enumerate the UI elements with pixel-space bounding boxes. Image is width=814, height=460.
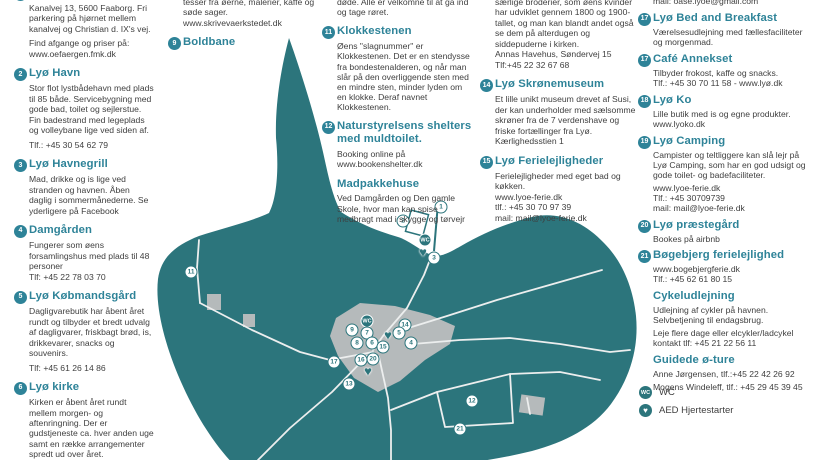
poi-item: 11KlokkestenenØens "slagnummer" er Klokk… [322, 25, 474, 112]
poi-number-badge: 20 [638, 220, 651, 233]
poi-title: Bøgebjerg ferielejlighed [653, 249, 812, 262]
poi-text: www.bogebjergferie.dk Tlf.: +45 62 61 80… [653, 265, 812, 285]
poi-text: Bookes på airbnb [653, 235, 812, 245]
poi-title: Lyø Camping [653, 135, 812, 148]
poi-item: 9Boldbane [168, 36, 320, 49]
column-four: særlige broderier, som øens kvinder har … [480, 0, 638, 231]
poi-number-badge: 14 [480, 79, 493, 92]
poi-title: Naturstyrelsens shelters med muldtoilet. [337, 120, 474, 146]
poi-item: 12Naturstyrelsens shelters med muldtoile… [322, 120, 474, 169]
poi-text: mail: oase.lyoe@gmail.com [653, 0, 812, 7]
poi-text: Udlejning af cykler på havnen. Selvbetje… [653, 306, 812, 326]
poi-number-badge: 17 [638, 54, 651, 67]
poi-text: Ved Damgården og Den gamle Skole, hvor m… [337, 193, 474, 223]
poi-title: Cykeludlejning [653, 290, 812, 303]
poi-text: www.lyoe-ferie.dk Tlf.: +45 30709739 mai… [653, 184, 812, 214]
poi-number-badge: 17 [638, 13, 651, 26]
poi-item: 4DamgårdenFungerer som øens forsamlingsh… [14, 224, 154, 282]
poi-number-badge: 4 [14, 225, 27, 238]
poi-title: Boldbane [183, 36, 320, 49]
poi-item: 6Lyø kirkeKirken er åbent året rundt mel… [14, 381, 154, 460]
poi-item: mail: oase.lyoe@gmail.com [638, 0, 812, 7]
poi-item: 1Ø-FærgenKanalvej 13, 5600 Faaborg. Fri … [14, 0, 154, 59]
island-guide-poster: 12WC♥311WC14975♥86154162017♥131221 1Ø-Fæ… [0, 0, 814, 460]
poi-item: døde. Alle er velkomne til at gå ind og … [322, 0, 474, 17]
poi-number-badge: 5 [14, 291, 27, 304]
poi-text: Mad, drikke og is lige ved stranden og h… [29, 174, 154, 216]
poi-title: Lyø Ferielejligheder [495, 155, 638, 168]
poi-number-badge: 19 [638, 136, 651, 149]
poi-title: Guidede ø-ture [653, 354, 812, 367]
poi-item: 17Lyø Bed and BreakfastVærelsesudlejning… [638, 12, 812, 48]
legend-wc-label: WC [659, 387, 675, 398]
poi-title: Damgården [29, 224, 154, 237]
poi-text: Anne Jørgensen, tlf.:+45 22 42 26 92 [653, 370, 812, 380]
poi-text: Et lille unikt museum drevet af Susi, de… [495, 94, 638, 146]
poi-item: 2Lyø HavnStor flot lystbådehavn med plad… [14, 67, 154, 150]
legend-wc-row: WC WC [639, 386, 733, 399]
poi-number-badge: 2 [14, 68, 27, 81]
poi-title: Lyø Ko [653, 94, 812, 107]
poi-text: Stor flot lystbådehavn med plads til 85 … [29, 83, 154, 135]
poi-number-badge: 3 [14, 159, 27, 172]
poi-title: Café Annekset [653, 53, 812, 66]
poi-text: døde. Alle er velkomne til at gå ind og … [337, 0, 474, 17]
poi-number-badge: 15 [480, 156, 493, 169]
poi-item: 20Lyø præstegårdBookes på airbnb [638, 219, 812, 245]
poi-text: tesser fra øerne, malerier, kaffe og sød… [183, 0, 320, 28]
map-legend: WC WC ♥ AED Hjertestarter [639, 386, 733, 422]
poi-title: Lyø Havnegrill [29, 158, 154, 171]
aed-heart-icon: ♥ [639, 404, 652, 417]
poi-title: Klokkestenen [337, 25, 474, 38]
poi-item: 21Bøgebjerg ferielejlighedwww.bogebjergf… [638, 249, 812, 285]
poi-item: MadpakkehuseVed Damgården og Den gamle S… [322, 178, 474, 224]
poi-text: Fungerer som øens forsamlingshus med pla… [29, 240, 154, 282]
poi-title: Lyø kirke [29, 381, 154, 394]
poi-item: tesser fra øerne, malerier, kaffe og sød… [168, 0, 320, 28]
poi-title: Madpakkehuse [337, 178, 474, 191]
poi-item: særlige broderier, som øens kvinder har … [480, 0, 638, 70]
poi-title: Lyø Bed and Breakfast [653, 12, 812, 25]
poi-title: Lyø Købmandsgård [29, 290, 154, 303]
poi-text: Værelsesudlejning med fællesfaciliteter … [653, 28, 812, 48]
poi-text: Øens "slagnummer" er Klokkestenen. Det e… [337, 41, 474, 112]
poi-item: 3Lyø HavnegrillMad, drikke og is lige ve… [14, 158, 154, 216]
column-left: 1Ø-FærgenKanalvej 13, 5600 Faaborg. Fri … [14, 0, 154, 460]
poi-text: særlige broderier, som øens kvinder har … [495, 0, 638, 70]
legend-aed-row: ♥ AED Hjertestarter [639, 404, 733, 417]
poi-text: Tlf: +45 61 26 14 86 [29, 363, 154, 373]
poi-item: CykeludlejningUdlejning af cykler på hav… [638, 290, 812, 349]
poi-title: Lyø Skrønemuseum [495, 78, 638, 91]
poi-text: Tlf.: +45 30 54 62 79 [29, 140, 154, 150]
poi-item: 15Lyø FerielejlighederFerielejligheder m… [480, 155, 638, 223]
poi-number-badge: 11 [322, 26, 335, 39]
poi-text: Booking online på www.bookenshelter.dk [337, 149, 474, 169]
legend-aed-label: AED Hjertestarter [659, 405, 733, 416]
poi-number-badge: 6 [14, 382, 27, 395]
poi-item: 18Lyø KoLille butik med is og egne produ… [638, 94, 812, 130]
poi-item: 5Lyø KøbmandsgårdDagligvarebutik har åbe… [14, 290, 154, 373]
column-middle: døde. Alle er velkomne til at gå ind og … [322, 0, 474, 232]
poi-text: Campister og teltliggere kan slå lejr på… [653, 151, 812, 181]
wc-icon: WC [639, 386, 652, 399]
poi-text: Kirken er åbent året rundt mellem morgen… [29, 397, 154, 460]
column-two: tesser fra øerne, malerier, kaffe og sød… [168, 0, 320, 57]
poi-text: Lille butik med is og egne produkter. ww… [653, 110, 812, 130]
poi-text: Kanalvej 13, 5600 Faaborg. Fri parkering… [29, 3, 154, 34]
column-right: mail: oase.lyoe@gmail.com17Lyø Bed and B… [638, 0, 812, 398]
poi-number-badge: 12 [322, 121, 335, 134]
poi-text: Tilbyder frokost, kaffe og snacks. Tlf.:… [653, 69, 812, 89]
poi-number-badge: 1 [14, 0, 27, 1]
poi-text: Ferielejligheder med eget bad og køkken.… [495, 171, 638, 223]
poi-item: 19Lyø CampingCampister og teltliggere ka… [638, 135, 812, 214]
poi-text: Leje flere dage eller elcykler/ladcykel … [653, 329, 812, 349]
poi-text: Dagligvarebutik har åbent året rundt og … [29, 306, 154, 358]
poi-number-badge: 18 [638, 95, 651, 108]
poi-number-badge: 9 [168, 37, 181, 50]
poi-item: 17Café AnneksetTilbyder frokost, kaffe o… [638, 53, 812, 89]
poi-number-badge: 21 [638, 250, 651, 263]
poi-text: Find afgange og priser på: www.oefaergen… [29, 38, 154, 59]
poi-title: Lyø Havn [29, 67, 154, 80]
poi-title: Lyø præstegård [653, 219, 812, 232]
poi-item: 14Lyø SkrønemuseumEt lille unikt museum … [480, 78, 638, 146]
